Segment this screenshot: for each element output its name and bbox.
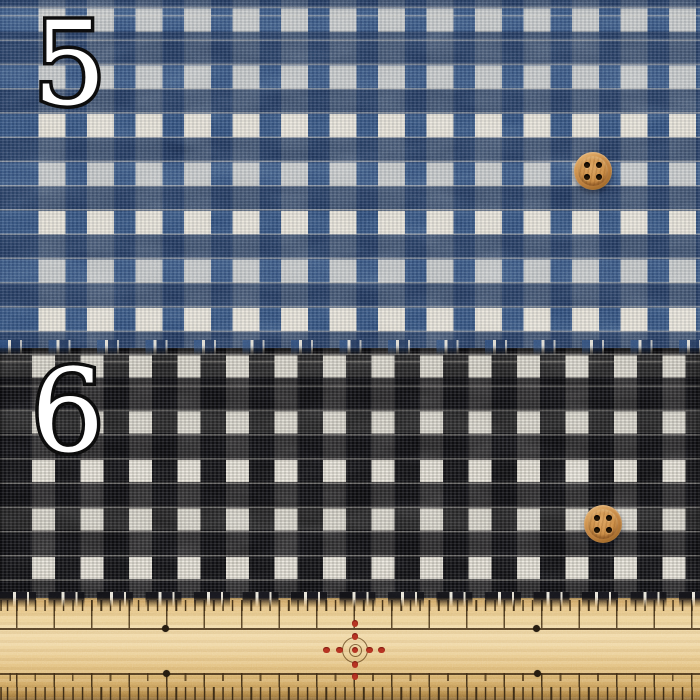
wooden-ruler xyxy=(0,598,700,700)
button-face xyxy=(578,156,608,186)
ruler-scale-line-top xyxy=(0,628,700,630)
fabric-fringe-blue xyxy=(0,340,700,356)
center-mark-red-dot xyxy=(366,647,373,654)
fabric-product-photo: 5 5 6 6 xyxy=(0,0,700,700)
wooden-button-top xyxy=(574,152,612,190)
swatch-number-5: 5 5 xyxy=(33,8,123,128)
center-mark-red-dot xyxy=(323,647,330,654)
center-mark-red-dot xyxy=(336,647,343,654)
button-hole xyxy=(606,527,612,533)
ruler-dot xyxy=(533,625,540,632)
button-hole xyxy=(594,527,600,533)
ruler-dot xyxy=(162,625,169,632)
button-hole xyxy=(596,162,602,168)
center-mark-red-dot xyxy=(352,633,359,640)
button-hole xyxy=(584,174,590,180)
ruler-ticks-top-medium xyxy=(0,615,700,628)
fabric-fringe-black xyxy=(0,592,700,608)
button-hole xyxy=(596,174,602,180)
wooden-button-bottom xyxy=(584,505,622,543)
ruler-ticks-bottom-fine xyxy=(0,687,700,700)
center-mark-red-dot xyxy=(378,647,385,654)
center-mark-red-dot xyxy=(352,661,359,668)
center-mark-red-dot xyxy=(352,620,359,627)
ruler-dot xyxy=(163,670,170,677)
button-face xyxy=(588,509,618,539)
number-fill: 6 xyxy=(31,355,104,470)
button-hole xyxy=(606,515,612,521)
button-hole xyxy=(594,515,600,521)
number-fill: 5 xyxy=(33,8,106,123)
ruler-dot xyxy=(534,670,541,677)
ruler-scale-line-bottom xyxy=(0,673,700,675)
swatch-number-6: 6 6 xyxy=(31,355,121,475)
button-hole xyxy=(584,162,590,168)
center-mark-red-dot xyxy=(352,673,359,680)
